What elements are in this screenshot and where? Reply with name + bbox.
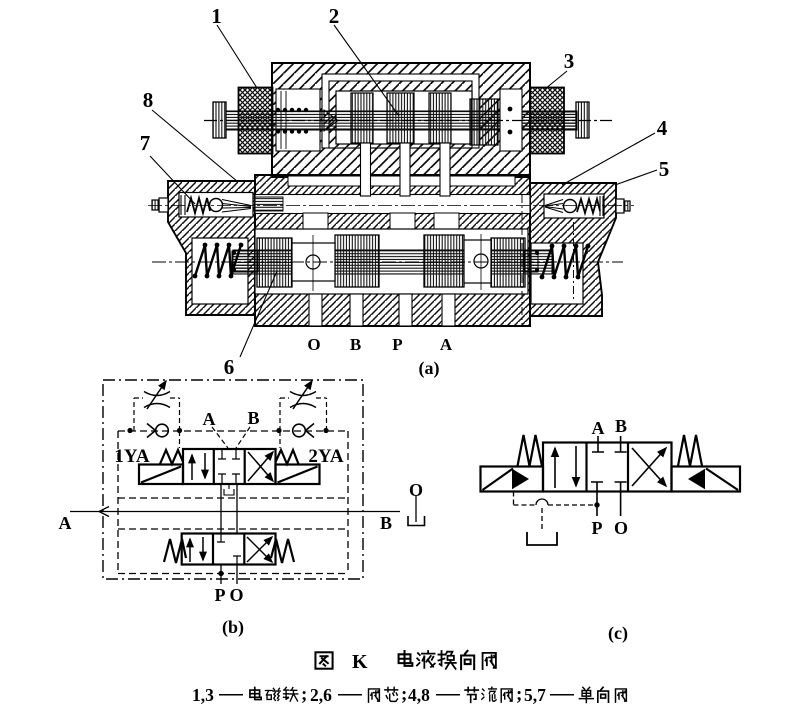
svg-text:8: 8 — [143, 88, 154, 112]
svg-text:B: B — [350, 335, 361, 354]
svg-text:B: B — [615, 416, 627, 436]
svg-text:O: O — [307, 335, 320, 354]
svg-text:A: A — [440, 335, 453, 354]
svg-text:1: 1 — [211, 4, 222, 28]
svg-text:4,8: 4,8 — [408, 685, 430, 705]
svg-text:;: ; — [516, 684, 522, 705]
svg-text:;: ; — [301, 684, 307, 705]
svg-text:;: ; — [401, 684, 407, 705]
svg-text:(b): (b) — [222, 617, 244, 638]
svg-text:O: O — [409, 480, 423, 500]
svg-text:2: 2 — [329, 4, 340, 28]
svg-text:A: A — [203, 409, 216, 429]
svg-text:A: A — [592, 418, 605, 438]
svg-text:3: 3 — [564, 49, 575, 73]
svg-text:B: B — [380, 513, 392, 533]
svg-text:K: K — [352, 651, 368, 673]
svg-text:B: B — [247, 408, 259, 428]
svg-text:1,3: 1,3 — [192, 685, 214, 705]
svg-text:(c): (c) — [608, 623, 628, 644]
svg-text:5,7: 5,7 — [524, 685, 546, 705]
svg-text:7: 7 — [140, 131, 151, 155]
svg-text:P: P — [592, 518, 603, 538]
svg-text:(a): (a) — [419, 358, 440, 379]
svg-text:O: O — [229, 585, 243, 605]
svg-text:2,6: 2,6 — [310, 685, 332, 705]
svg-text:5: 5 — [659, 157, 670, 181]
svg-text:4: 4 — [657, 116, 668, 140]
svg-text:6: 6 — [224, 355, 235, 379]
svg-text:O: O — [614, 518, 628, 538]
svg-text:P: P — [392, 335, 402, 354]
svg-text:P: P — [215, 585, 226, 605]
svg-text:2YA: 2YA — [308, 446, 343, 467]
svg-text:1YA: 1YA — [114, 446, 149, 467]
svg-text:A: A — [59, 513, 72, 533]
